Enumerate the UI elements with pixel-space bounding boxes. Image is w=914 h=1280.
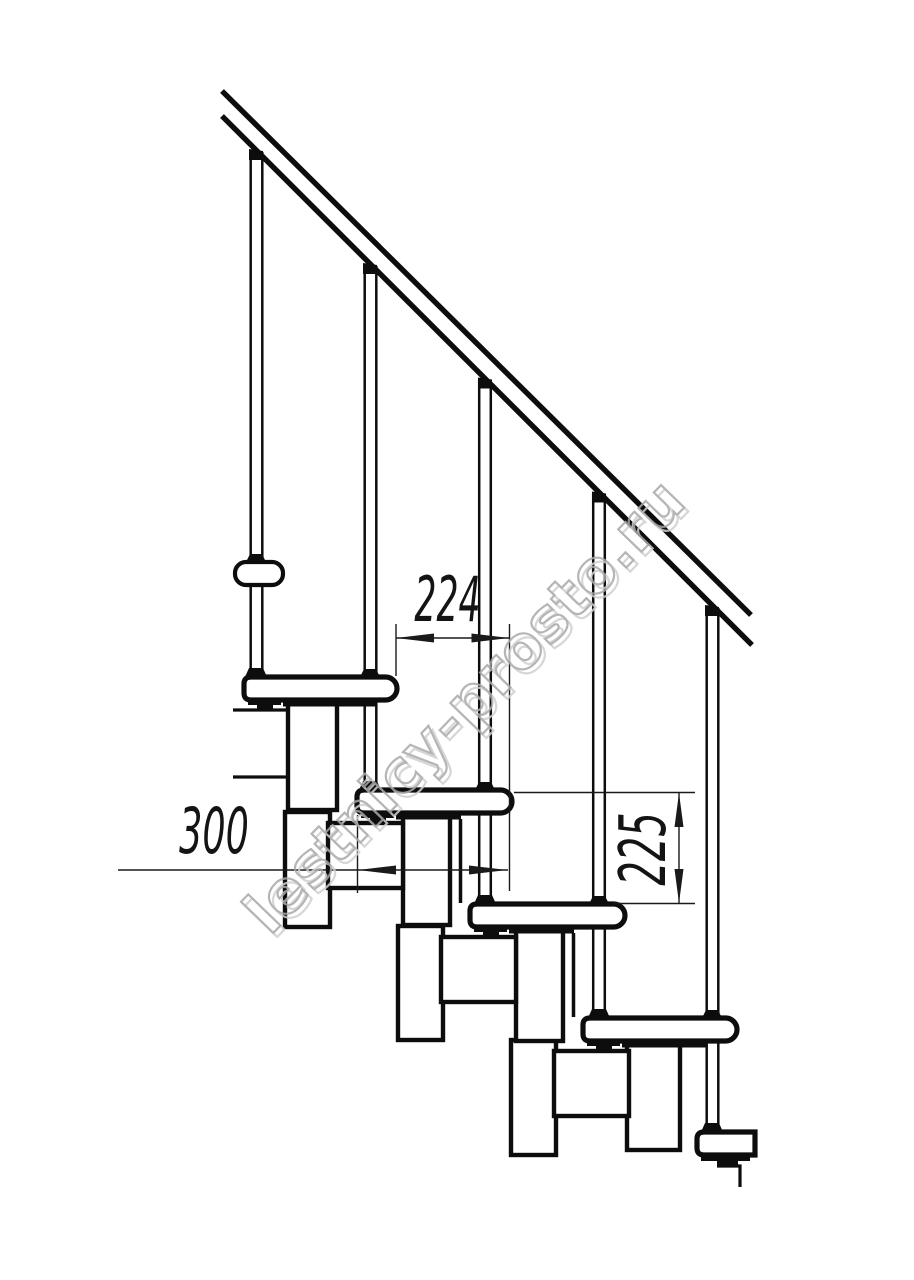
baluster-2: [365, 266, 377, 790]
tread-1: [244, 677, 397, 700]
bracket-3: [474, 927, 507, 936]
module-box-3: [554, 1051, 629, 1116]
upper-flight-tread-end: [235, 562, 283, 585]
bracket-1: [248, 700, 281, 709]
dim-value-225: 225: [607, 812, 681, 885]
tread-5: [697, 1132, 755, 1155]
handrail-bottom-line: [222, 116, 752, 645]
module-post-3: [511, 1040, 556, 1155]
module-column-1: [288, 700, 337, 810]
lower-flight-cut: [717, 1166, 740, 1187]
upper-landing-cut: [233, 710, 288, 777]
handrail: [222, 91, 752, 645]
tread-4: [583, 1018, 737, 1041]
bracket-5: [701, 1156, 750, 1165]
module-column-4: [627, 1040, 680, 1150]
module-column-3: [516, 926, 563, 1041]
arrow-right: [469, 866, 507, 875]
module-column-2: [403, 812, 450, 925]
baluster-1: [251, 152, 263, 677]
tread-3: [470, 904, 625, 927]
module-box-2: [441, 937, 516, 1002]
dim-value-300: 300: [179, 796, 249, 869]
bracket-4: [587, 1041, 620, 1050]
foot-baluster-4: [588, 1009, 610, 1018]
dim-value-224: 224: [414, 563, 480, 636]
foot-baluster-3: [474, 895, 496, 904]
module-post-2: [398, 926, 443, 1040]
bar-4: [622, 1041, 706, 1048]
foot-baluster-5: [701, 1123, 723, 1132]
baluster-5: [707, 608, 719, 1132]
bar-3: [509, 927, 574, 934]
staircase-technical-drawing: 224 300 225 lestnicy-prosto.ru lestnicy-…: [0, 0, 914, 1280]
drawing-canvas: 224 300 225 lestnicy-prosto.ru lestnicy-…: [0, 0, 914, 1280]
bar-1: [283, 700, 377, 707]
foot-baluster-1: [245, 668, 267, 677]
